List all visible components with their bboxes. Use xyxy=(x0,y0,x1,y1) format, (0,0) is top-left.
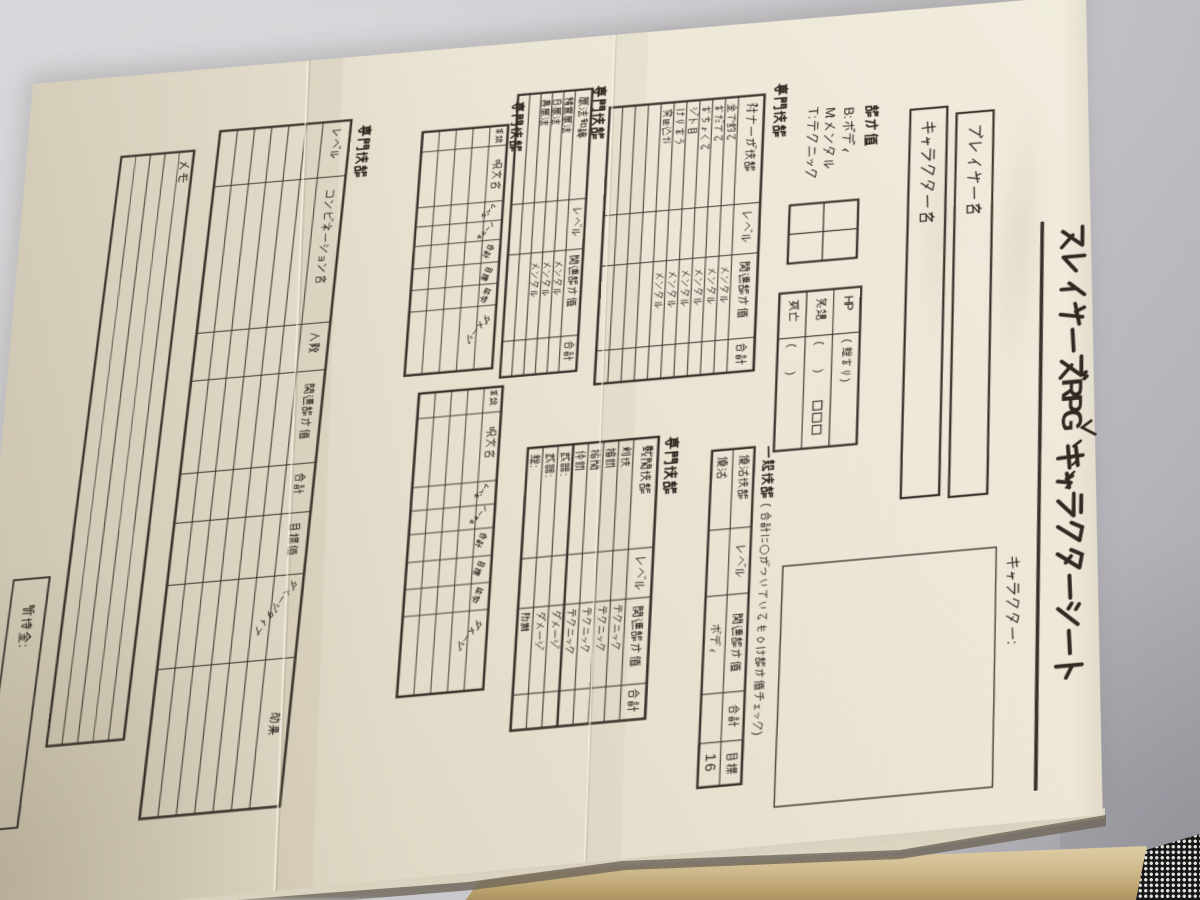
svg-text::: : xyxy=(527,464,540,468)
svg-text:): ) xyxy=(839,378,852,383)
svg-text::: : xyxy=(1004,640,1022,646)
svg-text:HP: HP xyxy=(841,295,856,312)
svg-text:(: ( xyxy=(812,341,825,346)
svg-text:): ) xyxy=(811,369,824,374)
svg-text:): ) xyxy=(784,371,797,376)
svg-text:(: ( xyxy=(785,343,798,348)
svg-text::: : xyxy=(16,643,32,648)
svg-text:(: ( xyxy=(759,503,772,508)
svg-text::: : xyxy=(557,472,570,476)
svg-text:T:: T: xyxy=(805,106,821,119)
svg-text:B:: B: xyxy=(841,106,857,119)
svg-text:16: 16 xyxy=(702,753,719,772)
svg-text:(: ( xyxy=(840,338,853,343)
svg-text::: : xyxy=(542,474,555,478)
svg-text:): ) xyxy=(750,731,763,736)
svg-text:RPG: RPG xyxy=(1055,377,1088,433)
svg-text:M:: M: xyxy=(822,106,838,119)
